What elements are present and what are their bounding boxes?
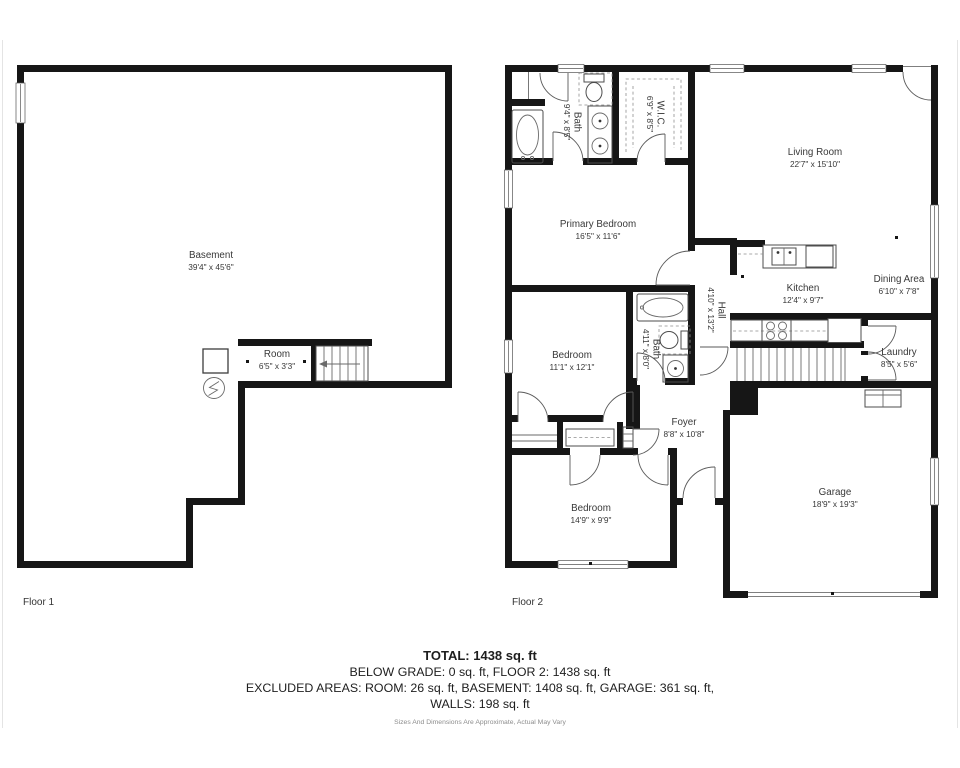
kitchen-dims: 12'4" x 9'7" <box>783 295 824 305</box>
bath1-label-group: Bath 9'4" x 8'5" <box>562 104 583 140</box>
bath2-dims: 4'11" x 8'0" <box>641 329 651 369</box>
floor1-window <box>16 83 25 123</box>
laundry-dims: 8'5" x 5'6" <box>881 359 917 369</box>
bathtub-icon <box>512 110 543 163</box>
bedroom3-label: Bedroom <box>571 503 611 514</box>
floor1-plan: Basement 39'4" x 45'6" Room 6'5" x 3'3" … <box>16 65 452 608</box>
electrical-meter-icon <box>204 378 225 399</box>
primary-bedroom-door-arc <box>656 251 690 285</box>
living-room-label: Living Room <box>788 147 842 158</box>
hall-dims: 4'10" x 13'2" <box>706 287 716 333</box>
bath1-label: Bath <box>572 112 583 132</box>
room-label: Room <box>264 349 290 360</box>
double-vanity-icon <box>588 106 612 163</box>
bedroom2-door-arc-left <box>518 392 548 422</box>
basement-stairs-icon <box>316 346 368 381</box>
bath1-fixtures <box>512 72 612 163</box>
floor2-label: Floor 2 <box>512 597 544 608</box>
floor1-ticks <box>18 67 450 565</box>
summary-walls: WALLS: 198 sq. ft <box>0 696 960 712</box>
bath1-corner-door-arc <box>540 73 568 101</box>
front-door-arc <box>683 467 715 498</box>
basement-label: Basement <box>189 250 233 261</box>
summary-total: TOTAL: 1438 sq. ft <box>0 648 960 664</box>
summary-excluded: EXCLUDED AREAS: ROOM: 26 sq. ft, BASEMEN… <box>0 680 960 696</box>
foyer-dims: 8'8" x 10'8" <box>664 429 705 439</box>
bedroom3-door-arc-right <box>638 455 668 485</box>
laundry-label: Laundry <box>881 347 917 358</box>
room-dims: 6'5" x 3'3" <box>259 361 295 371</box>
floorplan-page: Basement 39'4" x 45'6" Room 6'5" x 3'3" … <box>0 0 960 768</box>
stairs-arrow-icon <box>319 361 327 368</box>
living-room-dims: 22'7" x 15'10" <box>790 159 840 169</box>
wic-label-group: W.I.C. 6'9" x 8'5" <box>645 96 666 132</box>
basement-stair-door-arc <box>700 347 728 375</box>
electrical-panel-icon <box>203 349 228 373</box>
floor1-label: Floor 1 <box>23 597 55 608</box>
primary-bedroom-label: Primary Bedroom <box>560 219 636 230</box>
basement-dims: 39'4" x 45'6" <box>188 262 234 272</box>
bedroom2-dims: 11'1" x 12'1" <box>550 362 595 372</box>
hall-closets <box>512 427 633 448</box>
kitchen-counter <box>731 319 861 343</box>
garage-dims: 18'9" x 19'3" <box>812 499 858 509</box>
bedroom3-door-arc-left <box>570 455 600 485</box>
floor1-walls <box>17 65 452 568</box>
bedroom2-label: Bedroom <box>552 350 592 361</box>
front-door-opening <box>683 498 715 505</box>
summary-disclaimer: Sizes And Dimensions Are Approximate, Ac… <box>0 719 960 726</box>
bath1-dims: 9'4" x 8'5" <box>562 104 572 140</box>
summary-below-grade: BELOW GRADE: 0 sq. ft, FLOOR 2: 1438 sq.… <box>0 664 960 680</box>
fridge-icon <box>828 319 861 343</box>
washer-dryer-icon <box>865 390 901 407</box>
primary-bedroom-dims: 16'5" x 11'6" <box>576 231 621 241</box>
hall-label-group: Hall 4'10" x 13'2" <box>706 287 727 333</box>
wic-door-arc <box>637 134 665 162</box>
dining-area-dims: 6'10" x 7'8" <box>879 286 920 296</box>
hall-label: Hall <box>716 302 727 319</box>
toilet-icon <box>579 73 612 105</box>
bathtub2-icon <box>637 294 688 321</box>
entry-opening <box>903 65 931 72</box>
dining-area-label: Dining Area <box>874 274 925 285</box>
entry-door-arc <box>903 72 931 100</box>
floor2-plan: Bath 9'4" x 8'5" W.I.C. 6'9" x 8'5" Bath… <box>505 65 939 609</box>
garage-label: Garage <box>819 487 852 498</box>
bath2-label: Bath <box>651 339 662 359</box>
wic-dims: 6'9" x 8'5" <box>645 96 655 132</box>
foyer-label: Foyer <box>671 417 697 428</box>
wic-label: W.I.C. <box>655 101 666 128</box>
summary: TOTAL: 1438 sq. ft BELOW GRADE: 0 sq. ft… <box>0 648 960 726</box>
kitchen-label: Kitchen <box>787 283 820 294</box>
chimney-block <box>730 388 758 415</box>
bedroom3-dims: 14'9" x 9'9" <box>571 515 612 525</box>
kitchen-island <box>738 245 836 268</box>
toilet2-icon <box>659 326 690 354</box>
vanity2-icon <box>663 355 688 382</box>
stairs-down-icon <box>737 348 845 381</box>
